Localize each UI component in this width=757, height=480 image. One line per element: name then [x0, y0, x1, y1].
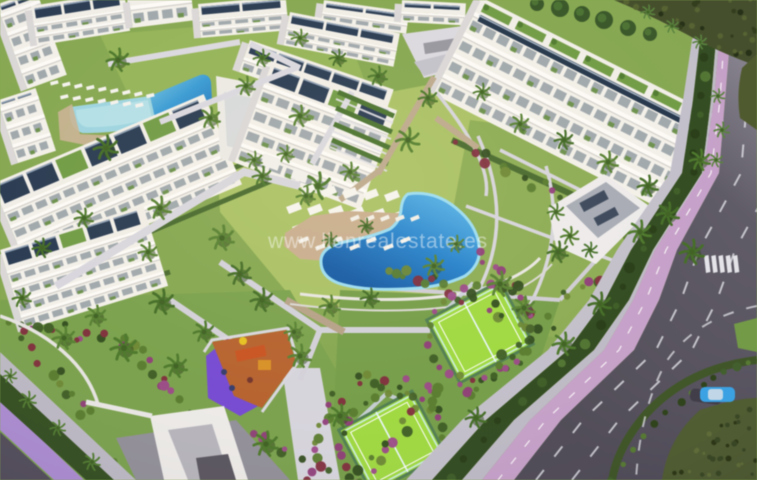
svg-text:www.lionrealestate.es: www.lionrealestate.es [267, 230, 488, 253]
